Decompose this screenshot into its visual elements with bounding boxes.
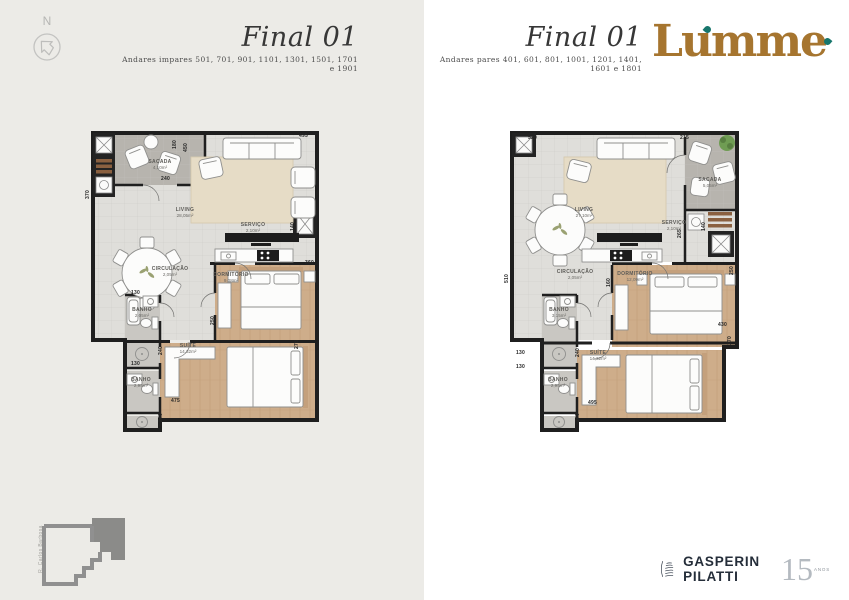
floor-plan-left-drawing	[85, 125, 330, 437]
street-label: R. Carlos Barbosa	[38, 514, 44, 584]
dim-label: 130	[131, 362, 140, 367]
dim-label: 140	[291, 222, 296, 231]
plant-icon	[719, 135, 735, 151]
bed-icon	[227, 346, 308, 408]
bed-icon	[626, 353, 707, 415]
page-subtitle-left: Andares impares 501, 701, 901, 1101, 130…	[118, 55, 358, 73]
highlighted-unit	[92, 518, 125, 560]
dim-label: 510	[505, 274, 510, 283]
developer-logo: GASPERIN PILATTI 15 ANOS	[660, 548, 830, 590]
dim-label: 450	[184, 143, 189, 152]
page-subtitle-right: Andares pares 401, 601, 801, 1001, 1201,…	[430, 55, 642, 73]
sink-icon	[143, 296, 158, 307]
dim-label: 180	[173, 140, 178, 149]
dim-label: 250	[730, 266, 735, 275]
dim-label: 370	[86, 190, 91, 199]
dim-label: 140	[702, 222, 707, 231]
page-title-right: Final 01	[430, 24, 642, 51]
anniversary-badge: 15 ANOS	[781, 554, 830, 584]
floor-plan-right: SACADA 5,05m² LIVING 27,10m² SERVIÇO 2,1…	[502, 125, 747, 437]
dim-label: 240	[159, 413, 164, 422]
bathtub-icon	[544, 297, 557, 325]
dim-label: 475	[171, 399, 180, 404]
lounge-chair-icon	[690, 177, 710, 197]
building-outline	[44, 526, 100, 584]
toilet-icon	[142, 383, 159, 395]
shaft-column	[93, 133, 115, 197]
toilet-icon	[559, 383, 576, 395]
floorplan-sheet: { "header": { "compass_label": "N", "lef…	[0, 0, 849, 600]
north-arrow-icon	[36, 36, 57, 57]
bathtub-icon	[127, 297, 140, 325]
dim-label: 240	[159, 346, 164, 355]
floor-plan-left: SACADA 4,10m² LIVING 28,05m² SERVIÇO 2,1…	[85, 125, 330, 437]
compass-circle-icon	[34, 34, 60, 60]
armchair-icon	[198, 156, 224, 180]
brand-logo: Lumme	[652, 16, 837, 68]
anniversary-label: ANOS	[814, 567, 830, 572]
dim-label: 250	[211, 316, 216, 325]
sink-icon	[127, 374, 142, 385]
brand-wordmark: Lumme	[652, 16, 837, 68]
dim-label: 275	[295, 340, 300, 349]
wardrobe-icon	[218, 283, 231, 328]
compass-n-label: N	[43, 14, 52, 28]
armchair-icon	[291, 197, 315, 218]
dim-label: 160	[607, 278, 612, 287]
armchair-icon	[291, 167, 315, 188]
lounge-chair-icon	[712, 161, 736, 185]
north-compass: N	[28, 12, 66, 68]
balcony-table-icon	[144, 135, 158, 149]
developer-name: GASPERIN PILATTI	[683, 554, 773, 584]
dim-label: 130	[516, 365, 525, 370]
dim-label: 215	[680, 136, 689, 141]
page-title-left: Final 01	[118, 24, 358, 51]
sink-icon	[544, 374, 559, 385]
dim-label: 240	[576, 413, 581, 422]
dim-label: 265	[678, 229, 683, 238]
dim-label: 270	[728, 336, 733, 345]
title-block-right: Final 01 Andares pares 401, 601, 801, 10…	[430, 24, 642, 73]
wardrobe-icon	[615, 285, 628, 330]
sofa-icon	[223, 138, 301, 159]
floor-plan-right-drawing	[502, 125, 747, 437]
anniversary-number: 15	[781, 554, 813, 584]
dim-label: 430	[718, 323, 727, 328]
dim-label: 130	[131, 291, 140, 296]
dim-label: 130	[516, 351, 525, 356]
sofa-icon	[597, 138, 675, 159]
dim-label: 240	[576, 348, 581, 357]
dim-label: 240	[161, 177, 170, 182]
dim-label: 495	[299, 134, 308, 139]
dim-label: 520	[528, 136, 537, 141]
dim-label: 360	[305, 261, 314, 266]
key-plan: R. Carlos Barbosa	[30, 512, 135, 592]
kitchen-counter-icon	[582, 249, 662, 262]
title-block-left: Final 01 Andares impares 501, 701, 901, …	[118, 24, 358, 73]
dim-label: 495	[588, 401, 597, 406]
building-icon	[660, 554, 677, 584]
kitchen-counter-icon	[215, 249, 293, 262]
sink-icon	[560, 296, 575, 307]
key-plan-drawing	[30, 512, 135, 592]
